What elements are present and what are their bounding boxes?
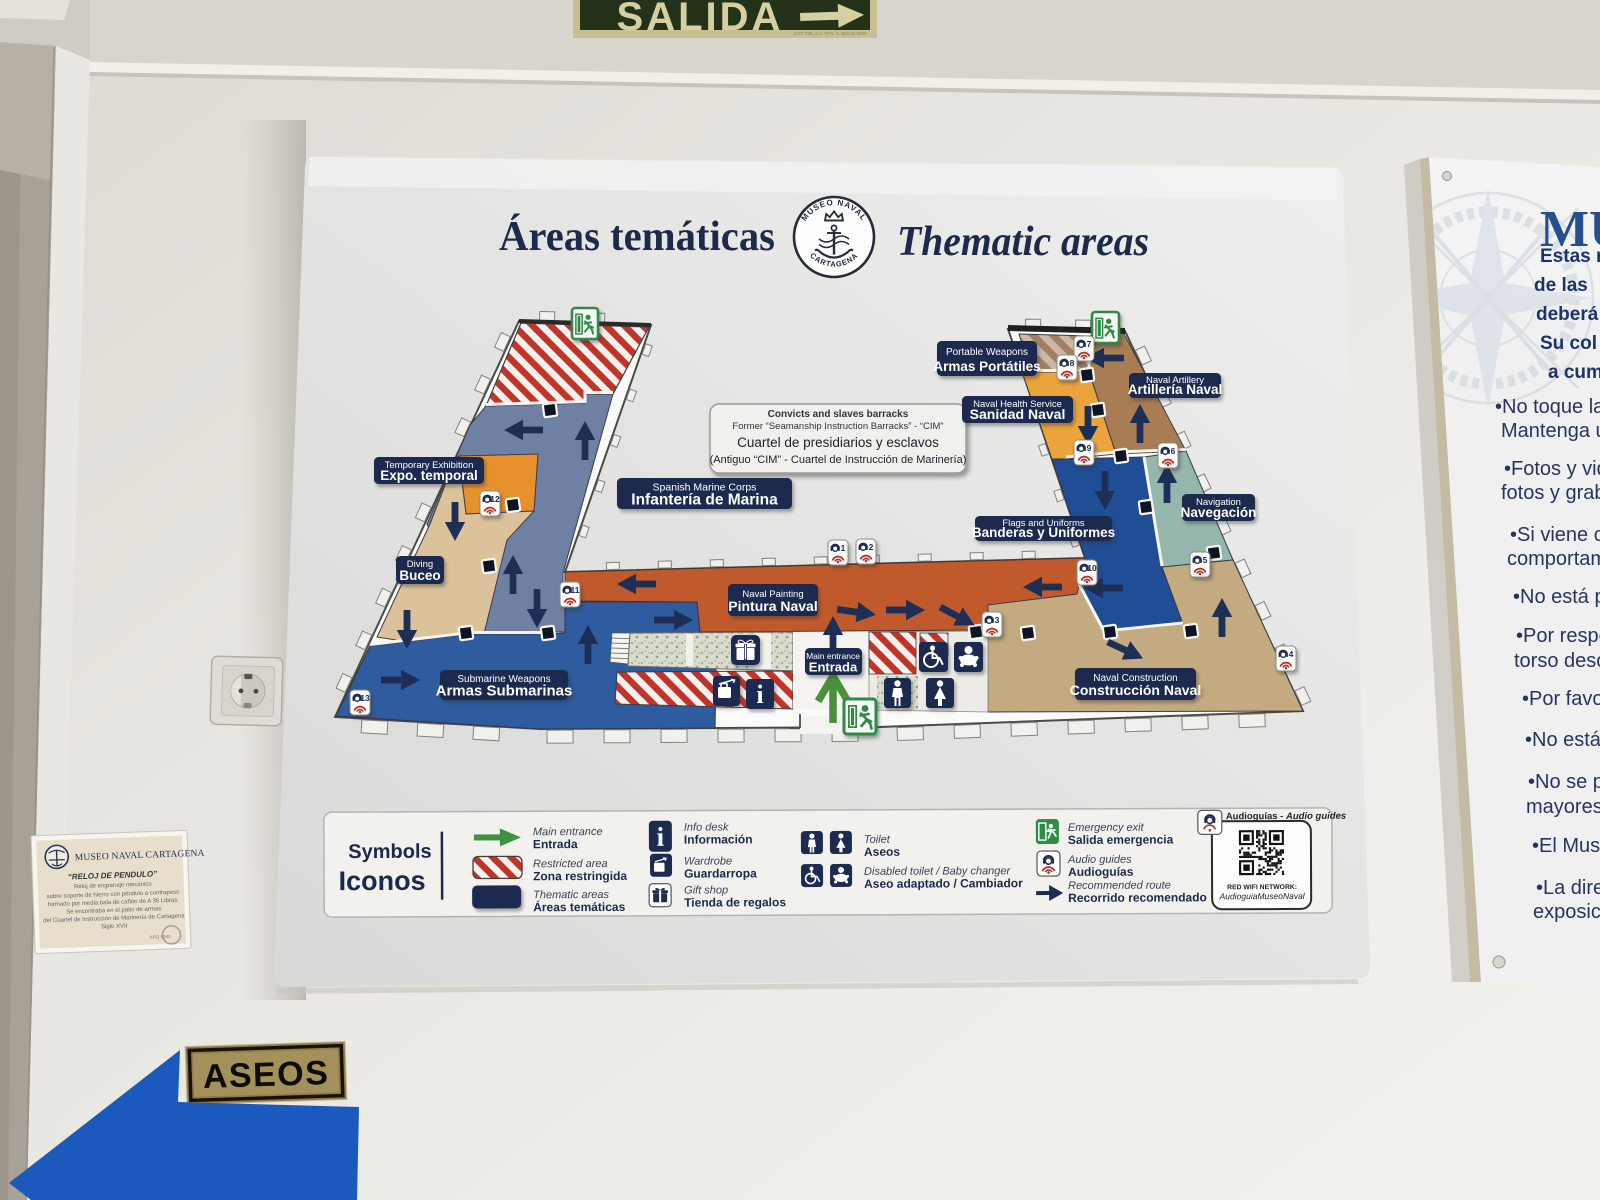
svg-text:Aseo adaptado / Cambiador: Aseo adaptado / Cambiador [864, 876, 1023, 891]
svg-text:•Por respeto: •Por respeto [1516, 625, 1600, 647]
svg-text:Zona restringida: Zona restringida [533, 869, 627, 883]
svg-text:•No está pe: •No está pe [1525, 729, 1600, 751]
svg-text:ARQ 0000: ARQ 0000 [150, 934, 172, 940]
svg-text:deberá: deberá [1536, 304, 1599, 325]
svg-text:Pintura Naval: Pintura Naval [728, 598, 817, 614]
svg-text:1: 1 [841, 543, 846, 553]
svg-text:•Si viene co: •Si viene co [1510, 524, 1600, 546]
svg-text:Banderas y Uniformes: Banderas y Uniformes [972, 525, 1115, 540]
svg-text:AudioguiaMuseoNaval: AudioguiaMuseoNaval [1219, 891, 1306, 901]
svg-text:Construcción Naval: Construcción Naval [1070, 682, 1201, 698]
svg-text:10: 10 [1087, 563, 1097, 573]
svg-text:Áreas temáticas: Áreas temáticas [499, 213, 775, 260]
svg-text:i: i [756, 680, 763, 709]
svg-text:Symbols: Symbols [348, 841, 431, 863]
svg-text:•La direcc: •La direcc [1536, 877, 1600, 899]
svg-text:Thematic areas: Thematic areas [897, 219, 1149, 265]
svg-text:Su col: Su col [1540, 333, 1597, 354]
svg-text:Tienda de regalos: Tienda de regalos [684, 895, 786, 909]
svg-text:8: 8 [1070, 358, 1075, 368]
svg-text:Mantenga una: Mantenga una [1501, 420, 1600, 442]
svg-text:Entrada: Entrada [809, 660, 858, 675]
svg-text:Infantería de Marina: Infantería de Marina [631, 491, 778, 508]
svg-text:13: 13 [360, 693, 370, 703]
svg-text:2: 2 [869, 542, 874, 552]
svg-text:mayores: mayores [1526, 796, 1600, 818]
svg-text:Áreas temáticas: Áreas temáticas [533, 899, 625, 914]
svg-text:Recorrido recomendado: Recorrido recomendado [1068, 890, 1207, 905]
svg-text:Former “Seamanship Instruction: Former “Seamanship Instruction Barracks”… [732, 421, 943, 432]
svg-text:Estas r: Estas r [1540, 246, 1600, 267]
svg-text:exposicio: exposicio [1533, 901, 1600, 923]
svg-text:12: 12 [490, 494, 500, 504]
svg-text:4: 4 [1289, 649, 1294, 659]
svg-text:Sanidad Naval: Sanidad Naval [970, 406, 1066, 422]
svg-text:Expo. temporal: Expo. temporal [380, 468, 478, 483]
svg-text:de las: de las [1534, 275, 1588, 296]
svg-text:•El Museo: •El Museo [1532, 835, 1600, 857]
svg-text:3: 3 [995, 615, 1000, 625]
svg-text:Audioguías: Audioguías [1068, 865, 1134, 879]
svg-text:•Por favor,: •Por favor, [1522, 688, 1600, 710]
svg-text:Armas Submarinas: Armas Submarinas [436, 683, 573, 700]
svg-text:Entrada: Entrada [533, 837, 578, 851]
svg-text:5: 5 [1203, 555, 1208, 565]
svg-text:SITE TML S.A. TFN. N. 968 00 0: SITE TML S.A. TFN. N. 968 00 0000 [794, 31, 867, 36]
svg-text:torso descu: torso descu [1514, 650, 1600, 672]
svg-text:Portable Weapons: Portable Weapons [946, 347, 1028, 358]
svg-text:i: i [657, 822, 665, 852]
svg-text:Audioguías - Audio guides: Audioguías - Audio guides [1226, 811, 1346, 823]
svg-text:Armas Portátiles: Armas Portátiles [933, 359, 1040, 374]
svg-text:Convicts and slaves barracks: Convicts and slaves barracks [768, 409, 909, 420]
svg-text:Iconos: Iconos [339, 866, 426, 896]
svg-text:Salida emergencia: Salida emergencia [1068, 832, 1174, 846]
svg-text:fotos y graba: fotos y graba [1501, 482, 1600, 504]
svg-text:Buceo: Buceo [399, 568, 440, 583]
svg-text:Aseos: Aseos [864, 845, 900, 859]
svg-text:11: 11 [571, 585, 580, 595]
svg-text:•No está per: •No está per [1513, 586, 1600, 608]
svg-text:a cum: a cum [1548, 362, 1600, 383]
svg-text:Información: Información [684, 832, 753, 846]
svg-text:Siglo XVII: Siglo XVII [101, 923, 128, 930]
svg-text:SALIDA: SALIDA [617, 0, 784, 39]
svg-text:Cuartel de presidiarios y escl: Cuartel de presidiarios y esclavos [737, 435, 939, 450]
svg-text:Guardarropa: Guardarropa [684, 866, 757, 880]
svg-text:•No toque las: •No toque las [1495, 396, 1600, 418]
svg-text:•No se per: •No se per [1528, 771, 1600, 793]
svg-text:ASEOS: ASEOS [202, 1054, 330, 1096]
svg-text:Artillería Naval: Artillería Naval [1128, 382, 1223, 397]
svg-text:•Fotos y video: •Fotos y video [1504, 458, 1600, 480]
svg-text:7: 7 [1087, 339, 1092, 349]
svg-text:Navegación: Navegación [1181, 505, 1257, 520]
svg-text:comportamie: comportamie [1507, 548, 1600, 570]
svg-text:9: 9 [1087, 443, 1092, 453]
svg-text:(Antiguo “CIM” - Cuartel de In: (Antiguo “CIM” - Cuartel de Instrucción … [710, 454, 967, 466]
svg-text:6: 6 [1171, 446, 1176, 456]
